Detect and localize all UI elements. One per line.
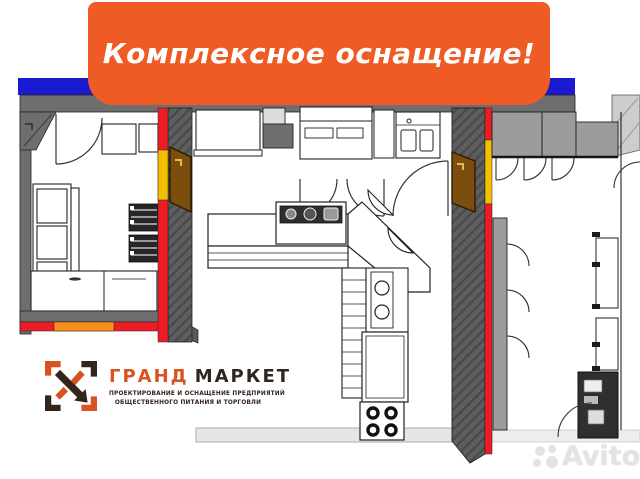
promo-banner: Комплексное оснащение!	[88, 2, 550, 105]
right-top-equipment	[492, 112, 618, 157]
logo-tagline: ПРОЕКТИРОВАНИЕ И ОСНАЩЕНИЕ ПРЕДПРИЯТИЙ О…	[109, 390, 267, 407]
middle-wall	[158, 108, 192, 342]
brown-door-right	[452, 152, 475, 212]
divider-wall	[452, 108, 492, 463]
top-equipment-row	[194, 107, 440, 159]
brown-door-left	[170, 147, 191, 212]
right-room	[492, 112, 640, 438]
logo-title: ГРАНДМАРКЕТ	[109, 366, 291, 387]
right-room-door-arcs	[496, 158, 640, 188]
logo-tagline-line1: ПРОЕКТИРОВАНИЕ И ОСНАЩЕНИЕ ПРЕДПРИЯТИЙ	[109, 390, 267, 399]
promo-banner-text: Комплексное оснащение!	[103, 37, 536, 70]
logo-title-secondary: МАРКЕТ	[195, 366, 291, 387]
company-logo: ГРАНДМАРКЕТ ПРОЕКТИРОВАНИЕ И ОСНАЩЕНИЕ П…	[45, 360, 291, 412]
ad-image: Комплексное оснащение! ГРАНДМАРКЕТ ПРОЕК…	[0, 0, 640, 479]
bottom-counter	[31, 271, 157, 311]
floor-strips	[196, 428, 640, 442]
avito-watermark-text: Avito	[562, 441, 640, 472]
door-arc-left-room	[56, 114, 102, 164]
dark-shelf-units	[129, 204, 159, 262]
avito-watermark: Avito	[528, 441, 640, 472]
sink-unit	[396, 112, 440, 158]
cookline-appliances	[276, 202, 346, 244]
right-room-left-shelves	[493, 218, 529, 430]
counter-vertical-leg	[342, 268, 408, 440]
four-burner-stove	[360, 402, 404, 440]
logo-text-block: ГРАНДМАРКЕТ ПРОЕКТИРОВАНИЕ И ОСНАЩЕНИЕ П…	[109, 360, 291, 407]
logo-tagline-line2: ОБЩЕСТВЕННОГО ПИТАНИЯ И ТОРГОВЛИ	[109, 399, 267, 408]
logo-title-primary: ГРАНД	[109, 366, 189, 387]
grand-market-logo-icon	[45, 360, 97, 412]
avito-dots-icon	[528, 443, 558, 471]
dark-equipment-unit	[558, 372, 618, 438]
